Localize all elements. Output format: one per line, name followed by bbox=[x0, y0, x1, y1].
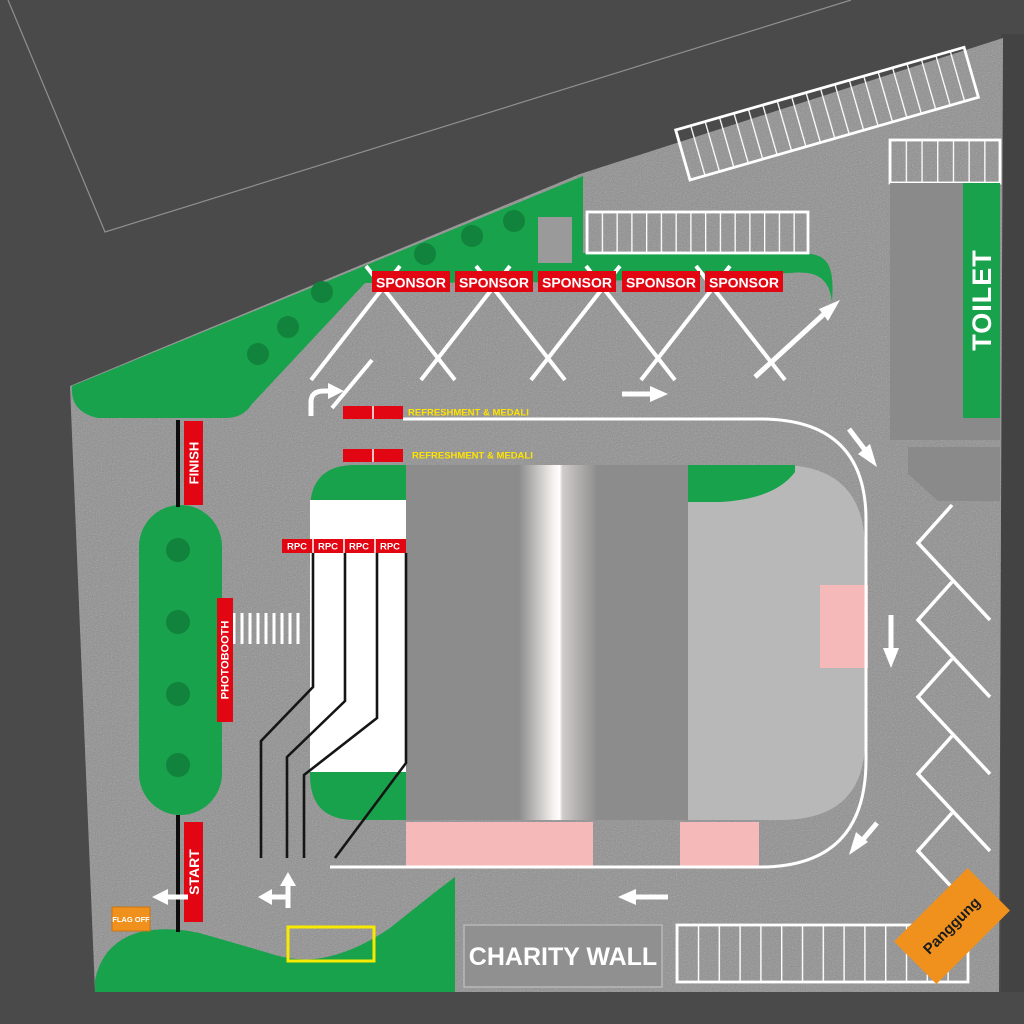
parking-row-toilet bbox=[890, 140, 1000, 183]
rpc-counters: RPC RPC RPC RPC bbox=[282, 539, 406, 553]
rpc-label: RPC bbox=[287, 541, 307, 552]
site-plan-canvas: TOILET FINISH START PHOTOBOOTH R bbox=[0, 0, 1024, 1024]
charity-wall-label: CHARITY WALL bbox=[469, 943, 657, 971]
utility-structure bbox=[538, 217, 572, 263]
building-mid bbox=[406, 465, 688, 820]
sponsor-label: SPONSOR bbox=[376, 275, 446, 291]
finish-label: FINISH bbox=[187, 442, 202, 485]
flag-off-marker: FLAG OFF bbox=[112, 907, 150, 931]
sponsor-label: SPONSOR bbox=[542, 275, 612, 291]
rpc-label: RPC bbox=[380, 541, 400, 552]
access-pad-east bbox=[820, 585, 868, 668]
refreshment-label: REFRESHMENT & MEDALI bbox=[408, 408, 529, 419]
access-pad-south-small bbox=[680, 822, 759, 866]
refreshment-label: REFRESHMENT & MEDALI bbox=[412, 451, 533, 462]
flag-off-label: FLAG OFF bbox=[112, 915, 150, 924]
toilet-label: TOILET bbox=[967, 249, 997, 351]
sponsor-label: SPONSOR bbox=[626, 275, 696, 291]
rpc-label: RPC bbox=[349, 541, 369, 552]
site-plan: TOILET FINISH START PHOTOBOOTH R bbox=[0, 0, 1024, 1024]
sponsor-label: SPONSOR bbox=[459, 275, 529, 291]
charity-wall: CHARITY WALL bbox=[464, 925, 662, 987]
right-edge-band bbox=[1001, 34, 1024, 992]
access-pad-south-large bbox=[406, 822, 593, 866]
refreshment-station-2: REFRESHMENT & MEDALI bbox=[343, 449, 533, 462]
start-label: START bbox=[186, 849, 202, 895]
rpc-label: RPC bbox=[318, 541, 338, 552]
refreshment-station-1: REFRESHMENT & MEDALI bbox=[343, 406, 529, 419]
sponsor-booths: SPONSOR SPONSOR SPONSOR SPONSOR SPONSOR bbox=[372, 271, 783, 292]
parking-row-mid bbox=[587, 212, 808, 253]
photobooth-label: PHOTOBOOTH bbox=[220, 621, 232, 700]
sponsor-label: SPONSOR bbox=[709, 275, 779, 291]
